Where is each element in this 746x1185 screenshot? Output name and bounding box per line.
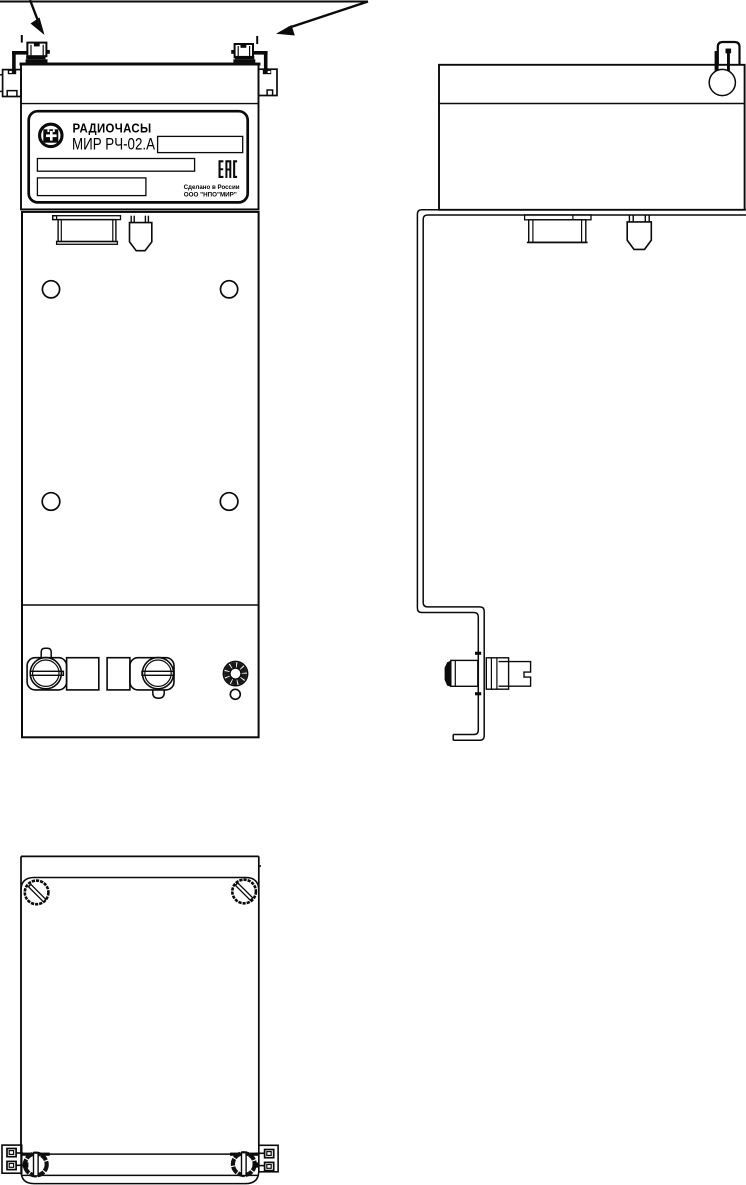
svg-text:РАДИОЧАСЫ: РАДИОЧАСЫ [73, 121, 152, 136]
svg-text:ООО "НПО"МИР": ООО "НПО"МИР" [184, 191, 237, 198]
svg-text:Сделано в России: Сделано в России [184, 184, 240, 191]
svg-text:МИР РЧ-02.А: МИР РЧ-02.А [72, 136, 155, 154]
